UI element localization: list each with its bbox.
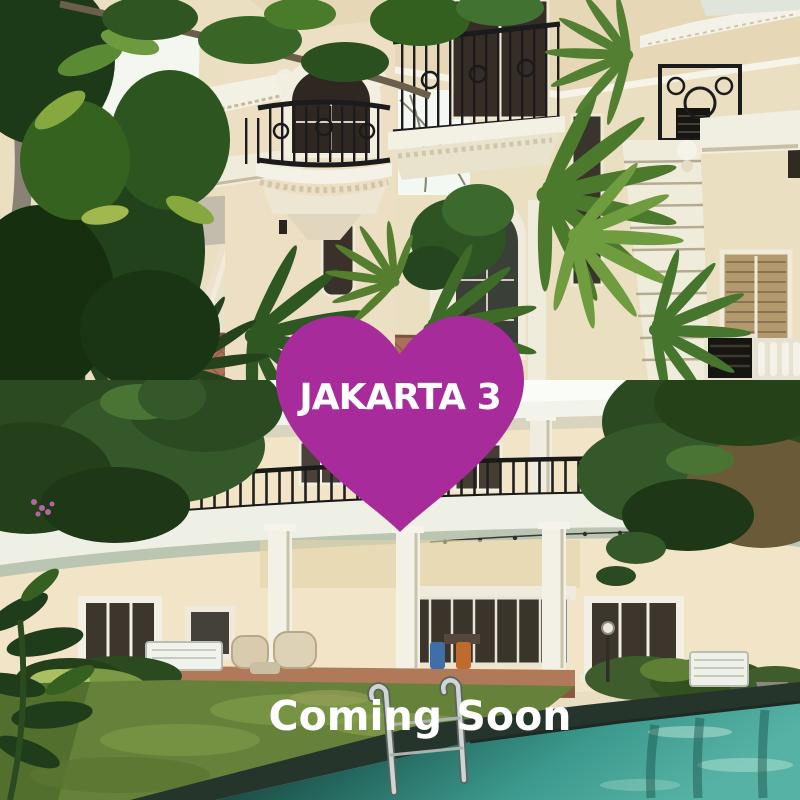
promo-image: JAKARTA 3 Coming Soon: [0, 0, 800, 800]
coming-soon-label: Coming Soon: [40, 690, 800, 742]
white-balustrade: [754, 338, 800, 380]
photo-top-exterior: [0, 0, 800, 380]
heart-badge-label: JAKARTA 3: [276, 372, 524, 424]
